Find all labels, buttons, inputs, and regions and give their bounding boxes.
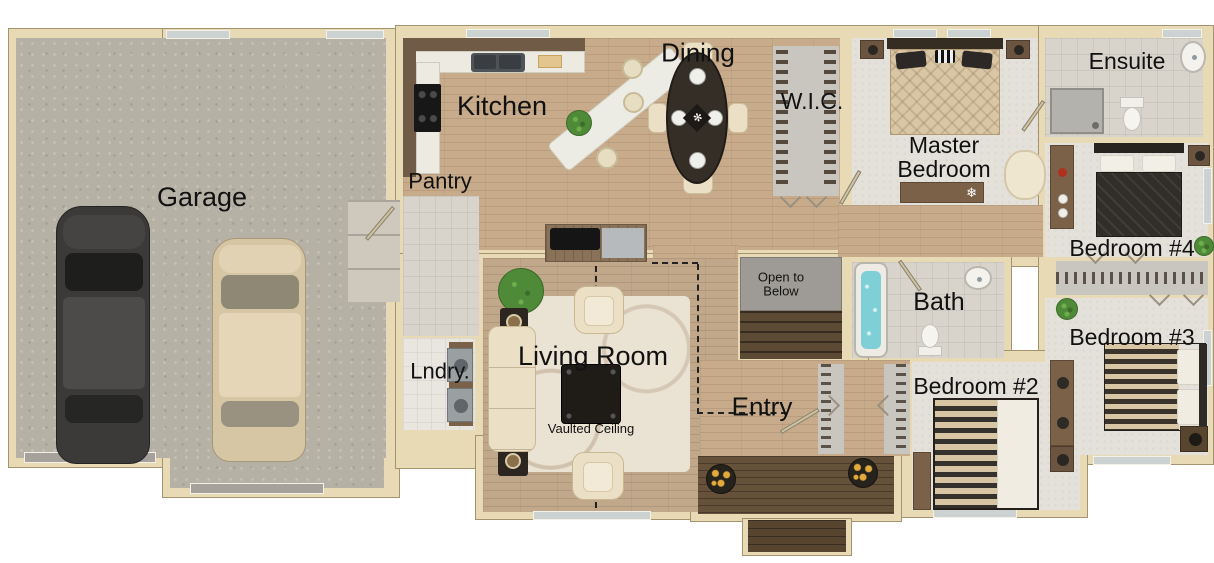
bedroom4-bed (1094, 143, 1184, 237)
place-setting (689, 152, 706, 169)
wic-clothes-left (776, 50, 788, 190)
desk (1050, 360, 1074, 446)
vaulted-ceiling-label: Vaulted Ceiling (548, 422, 634, 436)
dresser: ❄ (900, 182, 984, 203)
armchair (572, 452, 624, 500)
toilet-bowl (921, 324, 939, 348)
car-rear-window (65, 395, 143, 423)
toilet (1120, 97, 1144, 133)
car-roof (219, 313, 301, 397)
pillow (1177, 389, 1201, 425)
nightstand (1188, 145, 1210, 166)
table-lamp (505, 453, 521, 469)
accent-chair (1004, 150, 1046, 200)
accent-pillow (935, 50, 955, 63)
wic-clothes-right (824, 50, 836, 190)
duvet (935, 400, 997, 508)
bathtub (854, 262, 888, 358)
garage-label: Garage (157, 183, 247, 211)
stairs (740, 311, 842, 359)
car-dark (56, 206, 150, 464)
entry-label: Entry (732, 393, 793, 420)
pillow (997, 400, 1037, 508)
ceiling-break-line (697, 264, 699, 414)
bath-label: Bath (913, 289, 964, 315)
kitchen-label: Kitchen (457, 92, 547, 120)
car-roof (63, 297, 145, 389)
master-bed (887, 38, 1003, 135)
place-setting (689, 68, 706, 85)
tub-water (861, 271, 881, 349)
master-bedroom-label: Master Bedroom (889, 133, 999, 181)
master-window (893, 29, 937, 38)
bedroom3-label: Bedroom #3 (1069, 325, 1194, 349)
houseplant (1194, 236, 1214, 256)
bedroom3-window (1093, 456, 1171, 465)
desk (1050, 145, 1074, 229)
garage-window (166, 30, 230, 39)
chair-cushion (584, 296, 614, 326)
kitchen-sink (471, 53, 525, 72)
floor-plan: ✻ ❄ (0, 0, 1214, 563)
stove (414, 84, 441, 132)
pantry-label: Pantry (408, 169, 472, 192)
dryer (447, 388, 473, 422)
bathroom-sink (1180, 41, 1206, 73)
garage-steps (348, 200, 400, 302)
living-room-window (533, 511, 651, 520)
nightstand (1050, 446, 1074, 472)
pillow (1100, 155, 1134, 172)
bedroom2-window (933, 509, 1017, 518)
laundry-label: Lndry. (410, 359, 470, 382)
headboard (1094, 143, 1184, 153)
coffee-table (561, 364, 621, 424)
speaker (1057, 417, 1069, 429)
chair-cushion (583, 462, 613, 492)
car-hood (63, 215, 145, 249)
garage-window (326, 30, 384, 39)
houseplant (1056, 298, 1078, 320)
master-window (947, 29, 991, 38)
sink-basin (474, 55, 496, 69)
flower-planter (706, 464, 736, 494)
dining-chair (728, 103, 748, 133)
dresser (913, 452, 931, 510)
sink-basin (499, 55, 521, 69)
bar-stool (622, 58, 643, 79)
bedroom4-closet (1056, 261, 1208, 295)
dining-label: Dining (661, 39, 735, 66)
dryer-door (454, 399, 468, 413)
car-beige (212, 238, 306, 462)
ceiling-break-line (652, 262, 698, 264)
duvet (1105, 344, 1179, 430)
ensuite-window (1162, 29, 1202, 38)
wic-label: W.I.C. (781, 89, 844, 113)
toilet-bowl (1123, 107, 1141, 131)
upper-cabinets (403, 38, 585, 51)
duvet (1096, 172, 1182, 237)
toilet (918, 324, 942, 358)
car-windshield (221, 275, 299, 309)
car-windshield (65, 253, 143, 291)
headboard (1199, 344, 1207, 430)
pillow (1142, 155, 1176, 172)
bedroom2-label: Bedroom #2 (913, 374, 1038, 398)
speaker (1189, 433, 1202, 446)
car-rear-window (221, 401, 299, 427)
speaker (1057, 454, 1069, 466)
car-hood (219, 245, 301, 273)
pillow (1177, 349, 1201, 385)
dining-chair (648, 103, 668, 133)
bedroom2-bed (933, 398, 1039, 510)
cutting-board (538, 55, 562, 68)
bedroom4-window (1203, 168, 1212, 224)
houseplant (566, 110, 592, 136)
armchair (574, 286, 624, 334)
lamp (1195, 151, 1205, 161)
living-room-label: Living Room (518, 342, 668, 370)
nightstand (860, 40, 884, 59)
shower (1050, 88, 1104, 134)
open-to-below-label: Open to Below (745, 270, 817, 297)
flower-pot (1058, 168, 1067, 177)
bedroom4-label: Bedroom #4 (1069, 236, 1194, 260)
speaker (1057, 377, 1069, 389)
pillow (961, 50, 993, 69)
hall-floor (838, 205, 1043, 257)
porch-steps (748, 520, 846, 552)
flower-planter (848, 458, 878, 488)
kitchen-window (466, 29, 550, 38)
cup (1058, 208, 1068, 218)
nightstand (1006, 40, 1030, 59)
bar-stool (623, 92, 644, 113)
desk-mat (602, 228, 644, 258)
cup (1058, 194, 1068, 204)
bathroom-sink (964, 266, 992, 290)
lamp (868, 45, 878, 55)
garage-door (190, 483, 324, 494)
faucet (1192, 55, 1197, 60)
nightstand (1180, 426, 1208, 452)
bedroom3-bed (1104, 343, 1206, 431)
faucet (977, 277, 982, 282)
mudroom-floor (403, 196, 479, 336)
pillow (895, 50, 927, 69)
desk (550, 228, 600, 250)
headboard (887, 38, 1003, 49)
lamp (1014, 45, 1024, 55)
shower-drain (1092, 122, 1099, 129)
ensuite-label: Ensuite (1089, 49, 1166, 73)
bar-stool (596, 147, 618, 169)
